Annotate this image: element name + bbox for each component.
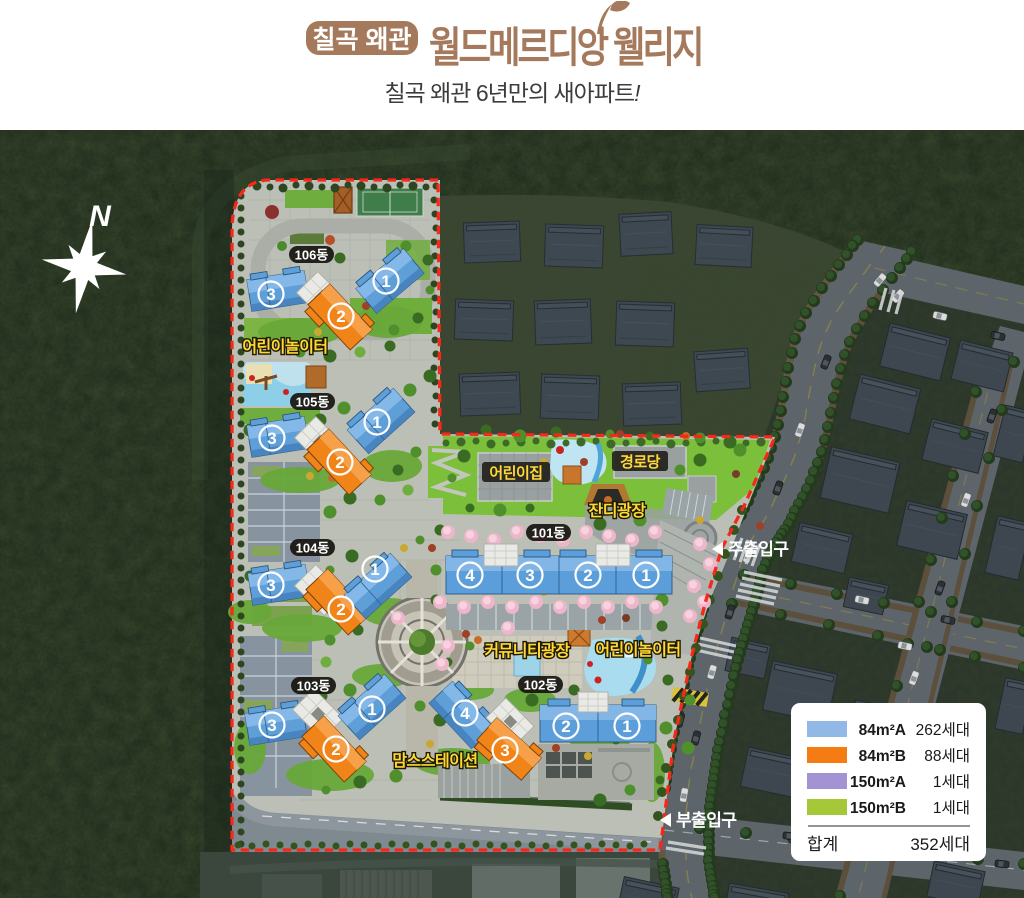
svg-text:104동: 104동 xyxy=(296,541,330,556)
svg-text:1: 1 xyxy=(370,560,379,579)
svg-text:3: 3 xyxy=(266,285,275,304)
svg-text:103동: 103동 xyxy=(297,679,331,694)
svg-text:1: 1 xyxy=(372,413,381,432)
svg-text:맘스스테이션: 맘스스테이션 xyxy=(392,752,477,770)
svg-text:2: 2 xyxy=(583,566,592,585)
svg-text:잔디광장: 잔디광장 xyxy=(589,501,647,520)
svg-text:2: 2 xyxy=(336,600,345,619)
svg-text:1: 1 xyxy=(381,272,390,291)
svg-text:84m²A: 84m²A xyxy=(859,722,906,739)
svg-text:88세대: 88세대 xyxy=(924,747,970,765)
svg-text:150m²A: 150m²A xyxy=(850,774,906,791)
svg-text:150m²B: 150m²B xyxy=(850,800,906,817)
svg-text:3: 3 xyxy=(525,566,534,585)
svg-text:1: 1 xyxy=(641,566,650,585)
svg-text:합계: 합계 xyxy=(807,835,838,854)
svg-text:1세대: 1세대 xyxy=(933,799,970,817)
svg-text:3: 3 xyxy=(266,576,275,595)
svg-text:2: 2 xyxy=(331,740,340,759)
svg-text:1: 1 xyxy=(622,717,631,736)
svg-text:어린이놀이터: 어린이놀이터 xyxy=(595,641,680,659)
svg-text:1세대: 1세대 xyxy=(933,773,970,791)
svg-text:1: 1 xyxy=(367,700,376,719)
svg-text:커뮤니티광장: 커뮤니티광장 xyxy=(484,641,570,660)
svg-text:2: 2 xyxy=(561,717,570,736)
svg-text:101동: 101동 xyxy=(532,526,566,541)
svg-text:N: N xyxy=(89,200,112,233)
svg-text:3: 3 xyxy=(267,716,276,735)
svg-text:경로당: 경로당 xyxy=(620,453,661,471)
svg-text:4: 4 xyxy=(460,704,470,723)
svg-text:105동: 105동 xyxy=(296,395,330,410)
svg-text:어린이놀이터: 어린이놀이터 xyxy=(242,338,327,356)
svg-text:4: 4 xyxy=(465,566,475,585)
svg-text:102동: 102동 xyxy=(524,678,558,693)
svg-text:2: 2 xyxy=(336,307,345,326)
svg-text:3: 3 xyxy=(500,741,509,760)
svg-text:3: 3 xyxy=(267,429,276,448)
svg-text:352세대: 352세대 xyxy=(910,835,970,854)
svg-text:어린이집: 어린이집 xyxy=(489,464,542,482)
svg-text:106동: 106동 xyxy=(295,248,329,263)
svg-text:부출입구: 부출입구 xyxy=(676,811,737,830)
svg-text:84m²B: 84m²B xyxy=(859,748,906,765)
svg-text:주출입구: 주출입구 xyxy=(728,540,789,559)
svg-text:262세대: 262세대 xyxy=(916,721,970,739)
svg-text:2: 2 xyxy=(335,453,344,472)
